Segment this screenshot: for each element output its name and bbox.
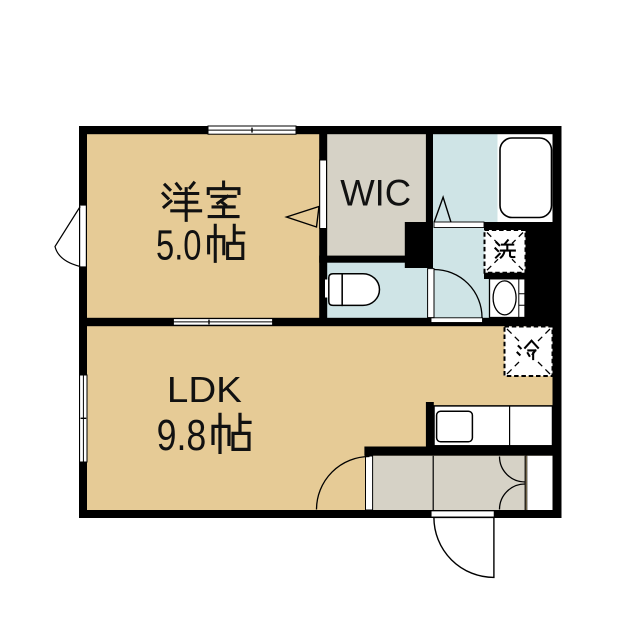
svg-text:9.8: 9.8 <box>157 411 207 460</box>
svg-text:LDK: LDK <box>167 369 242 410</box>
svg-text:WIC: WIC <box>340 171 411 213</box>
svg-text:5.0: 5.0 <box>156 223 202 270</box>
